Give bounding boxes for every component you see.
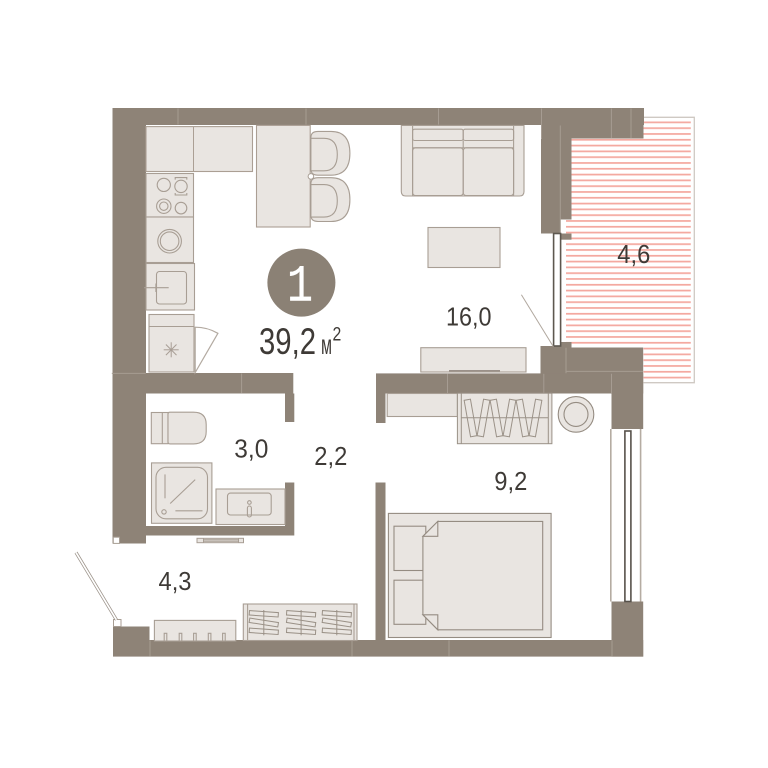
svg-text:16,0: 16,0 xyxy=(446,304,492,332)
svg-text:2: 2 xyxy=(333,323,342,345)
svg-text:1: 1 xyxy=(287,259,313,317)
svg-text:3,0: 3,0 xyxy=(234,436,268,464)
svg-text:9,2: 9,2 xyxy=(494,468,527,496)
svg-text:39,2: 39,2 xyxy=(259,320,316,362)
svg-text:м: м xyxy=(321,329,332,360)
svg-text:4,3: 4,3 xyxy=(159,568,192,596)
svg-text:2,2: 2,2 xyxy=(314,443,347,471)
svg-text:4,6: 4,6 xyxy=(617,241,650,269)
